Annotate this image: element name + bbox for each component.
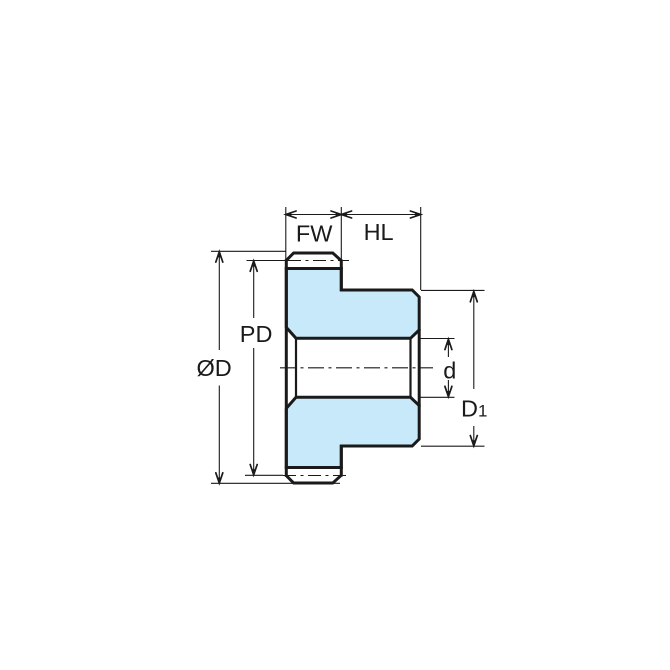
svg-text:ØD: ØD <box>196 355 231 381</box>
svg-text:HL: HL <box>364 219 394 245</box>
svg-text:PD: PD <box>240 321 273 347</box>
svg-text:d: d <box>443 358 456 384</box>
svg-text:FW: FW <box>296 221 333 247</box>
